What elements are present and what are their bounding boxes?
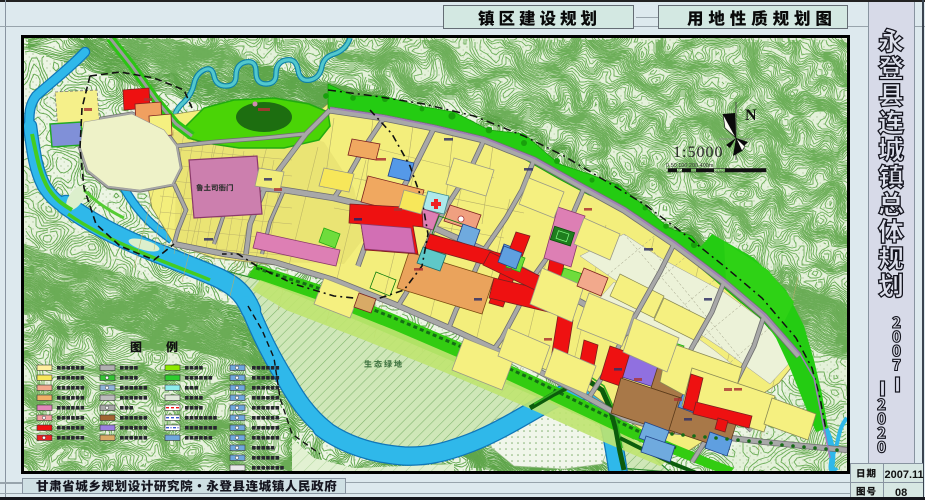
svg-text:08: 08 — [895, 487, 907, 499]
svg-text:2007.11: 2007.11 — [885, 469, 924, 481]
